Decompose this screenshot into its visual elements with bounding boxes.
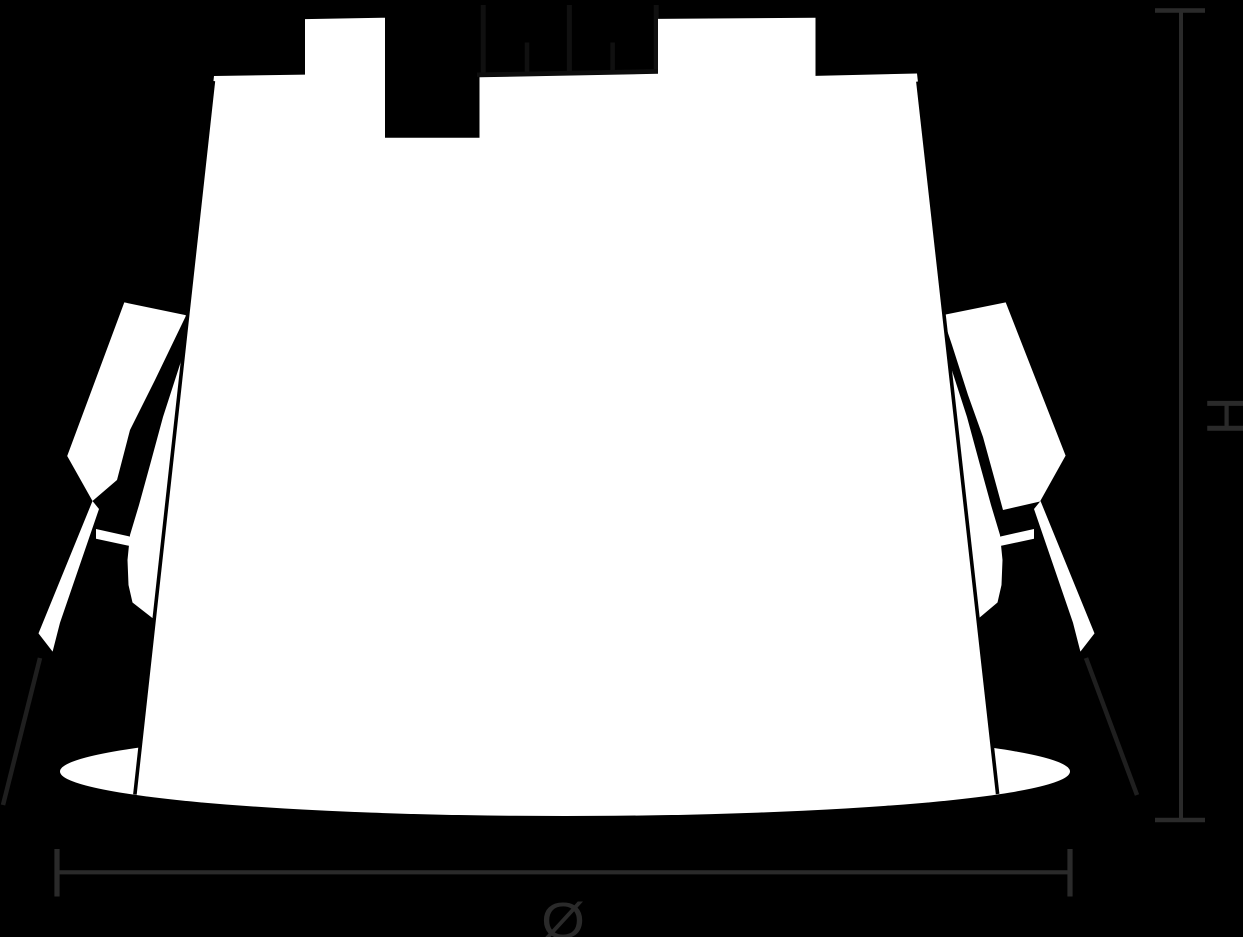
svg-text:Ø: Ø bbox=[541, 893, 585, 937]
svg-text:H: H bbox=[1196, 396, 1243, 435]
